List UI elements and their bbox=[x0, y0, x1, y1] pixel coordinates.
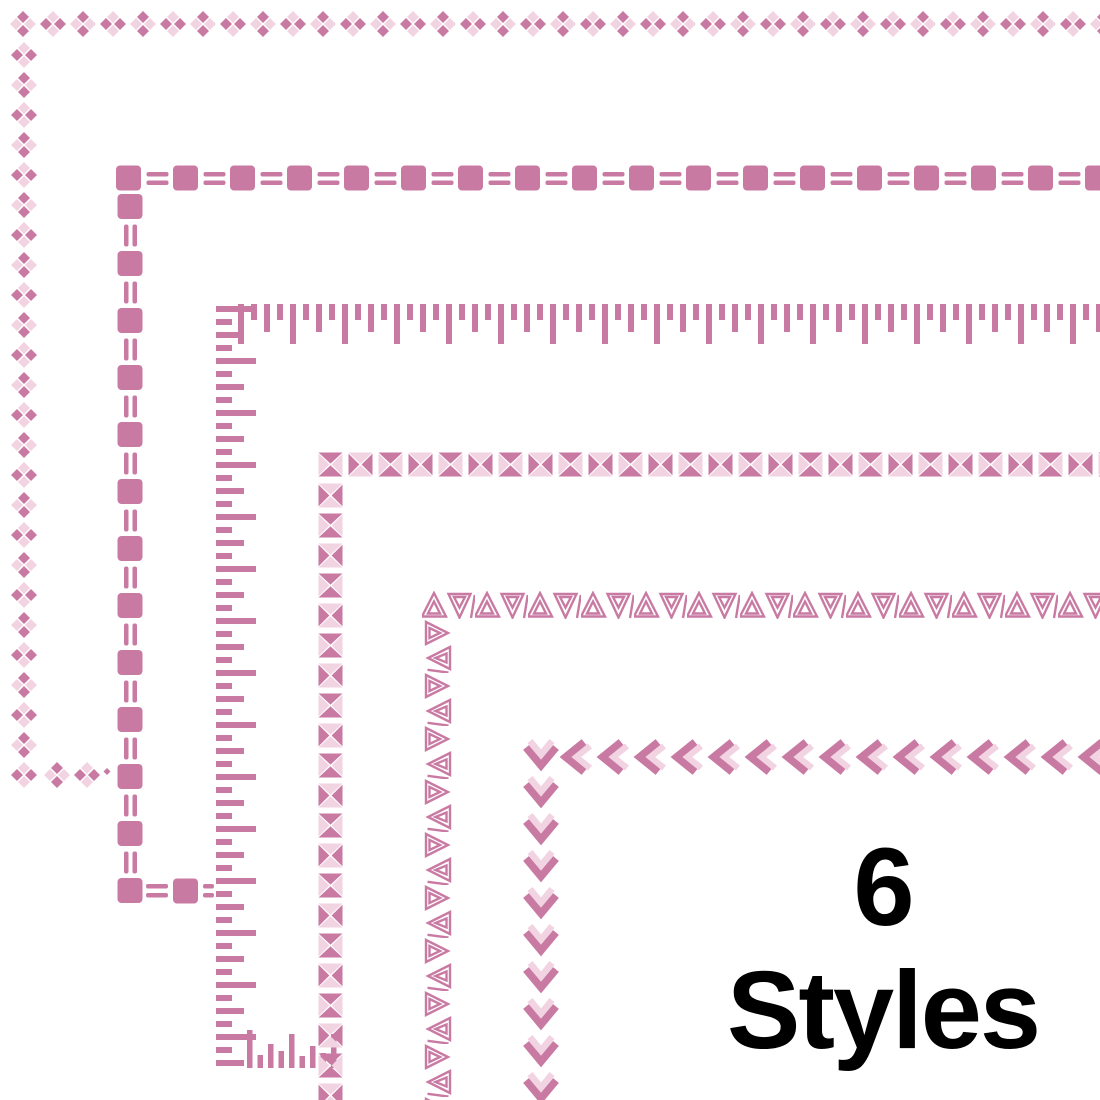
style3-left-run bbox=[216, 306, 258, 1068]
caption-word: Styles bbox=[683, 949, 1083, 1072]
style3-top-run bbox=[238, 304, 1100, 346]
style5-top-run bbox=[422, 591, 1100, 619]
style2-left-run bbox=[116, 194, 144, 904]
style5-left-run bbox=[424, 620, 452, 1100]
style1-top-run bbox=[8, 8, 1100, 40]
border-style-2-squares-dashes bbox=[116, 164, 1100, 904]
style6-left-run bbox=[522, 738, 560, 1100]
style6-top-run bbox=[556, 738, 1100, 776]
caption: 6 Styles bbox=[683, 826, 1083, 1072]
style4-top-run bbox=[318, 452, 1100, 477]
style2-top-run bbox=[116, 164, 1100, 192]
style1-bottom-corner bbox=[44, 762, 111, 788]
style4-left-run bbox=[318, 483, 343, 1100]
style1-left-run bbox=[8, 40, 40, 792]
caption-number: 6 bbox=[683, 826, 1083, 949]
border-style-1-diamond-clusters bbox=[8, 8, 1100, 792]
style2-bottom-corner bbox=[146, 879, 214, 904]
